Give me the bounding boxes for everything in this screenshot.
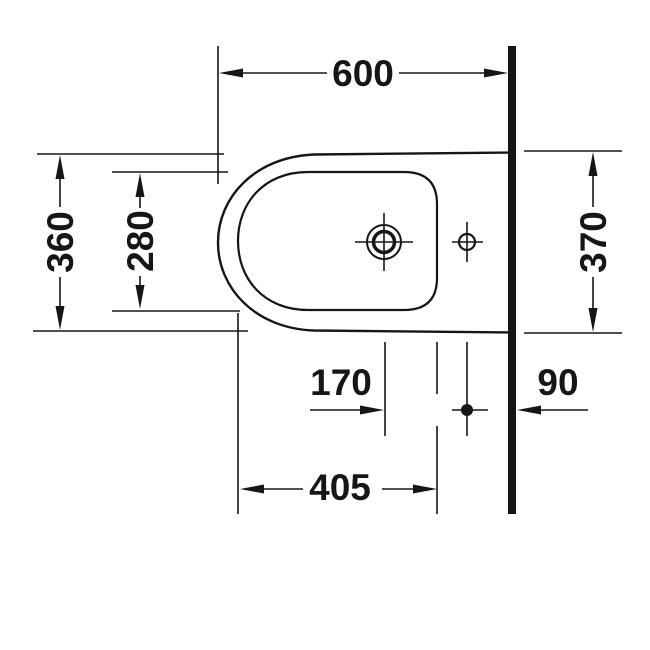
bidet-plan-drawing: 600 360 280 bbox=[0, 0, 650, 650]
arrow-down-icon bbox=[589, 308, 598, 332]
dimension-405: 405 bbox=[238, 313, 437, 514]
arrow-right-icon bbox=[484, 69, 508, 78]
dimension-600: 600 bbox=[218, 46, 508, 184]
dimension-dot-terminator bbox=[461, 404, 473, 416]
arrow-down-icon bbox=[136, 285, 145, 309]
dimension-280: 280 bbox=[112, 172, 240, 311]
dim-label-90: 90 bbox=[537, 362, 578, 403]
dim-label-280: 280 bbox=[120, 210, 161, 272]
arrow-up-icon bbox=[589, 152, 598, 176]
fixing-hole-axis-marker bbox=[452, 342, 488, 436]
arrow-right-icon bbox=[360, 406, 384, 415]
arrow-right-icon bbox=[413, 485, 437, 494]
dimension-90: 90 bbox=[517, 362, 588, 415]
fixing-hole bbox=[452, 222, 483, 262]
arrow-up-icon bbox=[136, 173, 145, 197]
technical-drawing-canvas: 600 360 280 bbox=[0, 0, 650, 650]
arrow-up-icon bbox=[56, 155, 65, 179]
arrow-down-icon bbox=[56, 306, 65, 330]
bidet-body bbox=[218, 153, 512, 333]
dim-label-370: 370 bbox=[573, 211, 614, 273]
dim-label-170: 170 bbox=[310, 362, 372, 403]
dimension-370: 370 bbox=[524, 151, 622, 333]
arrow-left-icon bbox=[219, 69, 243, 78]
dim-label-360: 360 bbox=[40, 211, 81, 273]
dim-label-600: 600 bbox=[332, 53, 394, 94]
dimension-170: 170 bbox=[310, 342, 385, 436]
arrow-left-icon bbox=[517, 406, 541, 415]
dim-label-405: 405 bbox=[309, 467, 371, 508]
bowl-rim-outline bbox=[238, 172, 437, 310]
arrow-left-icon bbox=[240, 485, 264, 494]
